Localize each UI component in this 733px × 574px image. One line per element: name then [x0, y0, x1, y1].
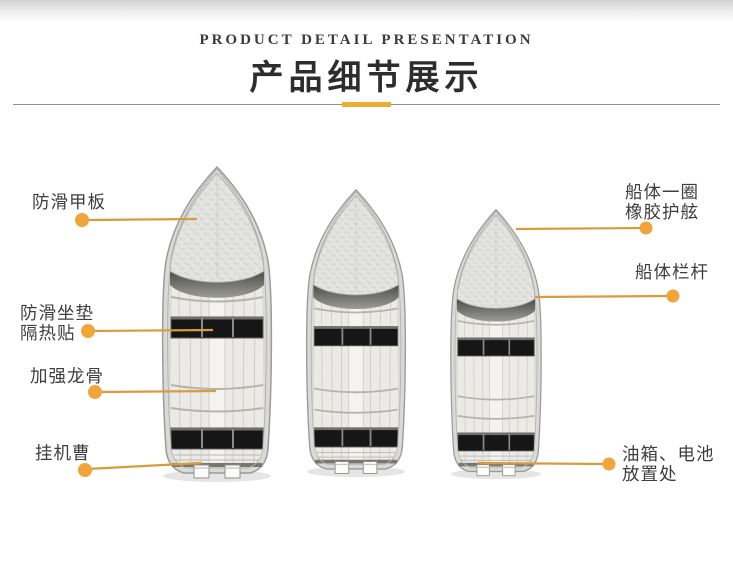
callout-fender: 船体一圈 橡胶护舷	[625, 182, 699, 222]
callout-text: 防滑坐垫	[20, 303, 94, 323]
callout-text: 防滑甲板	[32, 192, 106, 212]
page-title: 产品细节展示	[0, 50, 733, 99]
callout-text: 隔热贴	[20, 323, 94, 343]
callout-dot-motor-slot	[78, 463, 92, 477]
callout-railing: 船体栏杆	[635, 262, 709, 282]
callout-text: 油箱、电池	[622, 444, 715, 464]
leader-line-railing	[535, 296, 671, 297]
header-subtitle-en: PRODUCT DETAIL PRESENTATION	[0, 32, 733, 49]
callout-anti-slip-deck: 防滑甲板	[32, 192, 106, 212]
callout-keel: 加强龙骨	[30, 366, 104, 386]
boat-small-image	[442, 208, 550, 480]
callout-text: 放置处	[622, 464, 715, 484]
callout-cushion: 防滑坐垫 隔热贴	[20, 303, 94, 343]
callout-dot-fender	[640, 222, 653, 235]
callout-dot-keel	[88, 385, 102, 399]
callout-text: 加强龙骨	[30, 366, 104, 386]
product-detail-banner: PRODUCT DETAIL PRESENTATION 产品细节展示	[0, 0, 733, 574]
callout-text: 挂机曹	[35, 443, 91, 463]
boat-medium-image	[297, 188, 415, 478]
callout-dot-tank-battery	[603, 458, 616, 471]
header-divider-gold-accent	[342, 102, 391, 107]
boat-large-image	[152, 165, 282, 483]
top-gradient-band	[0, 0, 733, 22]
callout-text: 船体一圈	[625, 182, 699, 202]
callout-dot-railing	[667, 290, 680, 303]
callout-dot-anti-slip-deck	[75, 213, 89, 227]
callout-tank-battery: 油箱、电池 放置处	[622, 444, 715, 484]
callout-text: 船体栏杆	[635, 262, 709, 282]
callout-motor-slot: 挂机曹	[35, 443, 91, 463]
callout-text: 橡胶护舷	[625, 202, 699, 222]
